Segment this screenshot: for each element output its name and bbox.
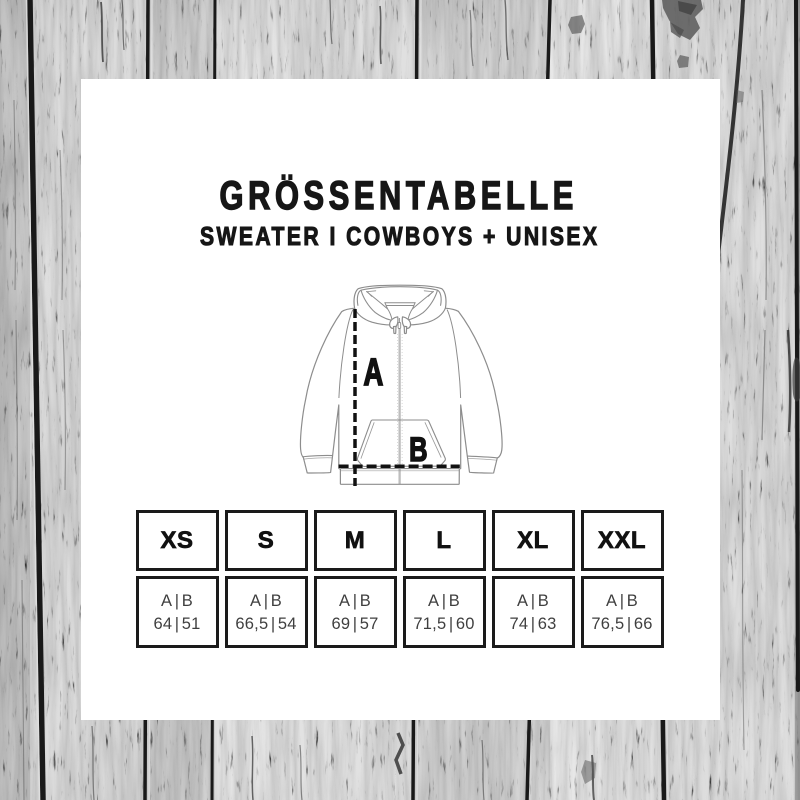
svg-text:B: B [409,431,427,469]
svg-text:A: A [364,352,384,394]
